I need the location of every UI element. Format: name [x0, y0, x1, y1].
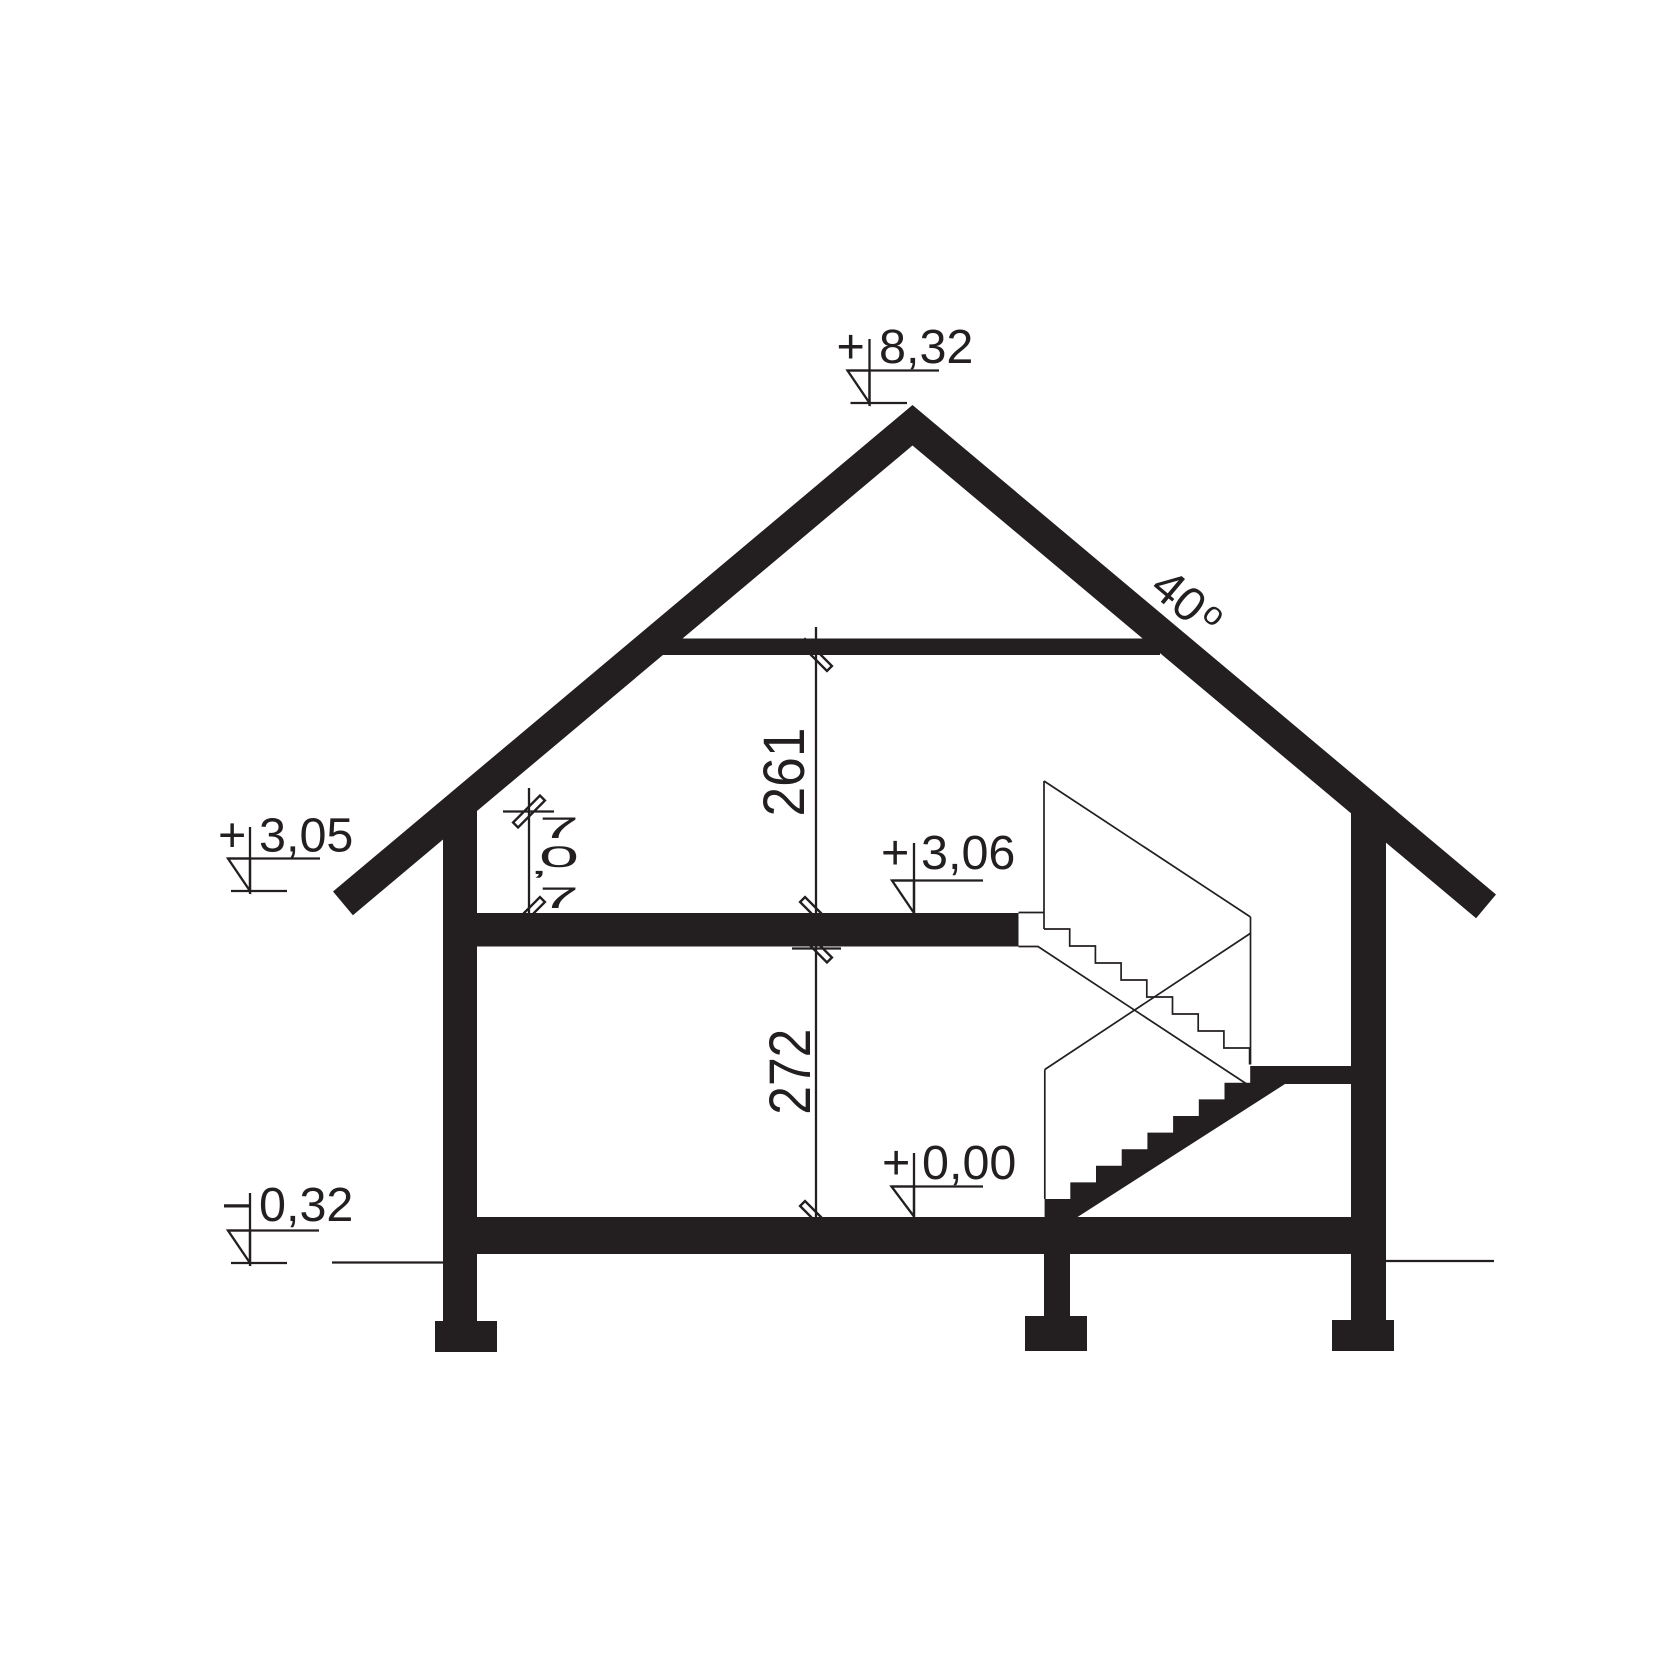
svg-text:0,00: 0,00: [922, 1136, 1016, 1190]
svg-text:272: 272: [758, 1029, 823, 1115]
svg-text:3,06: 3,06: [921, 826, 1015, 880]
svg-text:+: +: [882, 1136, 910, 1190]
svg-text:+: +: [881, 826, 909, 880]
svg-text:0,32: 0,32: [259, 1178, 353, 1232]
svg-text:8,32: 8,32: [879, 320, 973, 374]
svg-text:7: 7: [539, 881, 579, 915]
svg-text:+: +: [218, 809, 246, 863]
svg-text:+: +: [837, 320, 865, 374]
svg-text:,: ,: [529, 847, 549, 881]
svg-text:–: –: [224, 1175, 251, 1229]
svg-text:3,05: 3,05: [259, 809, 353, 863]
svg-text:261: 261: [752, 728, 817, 817]
